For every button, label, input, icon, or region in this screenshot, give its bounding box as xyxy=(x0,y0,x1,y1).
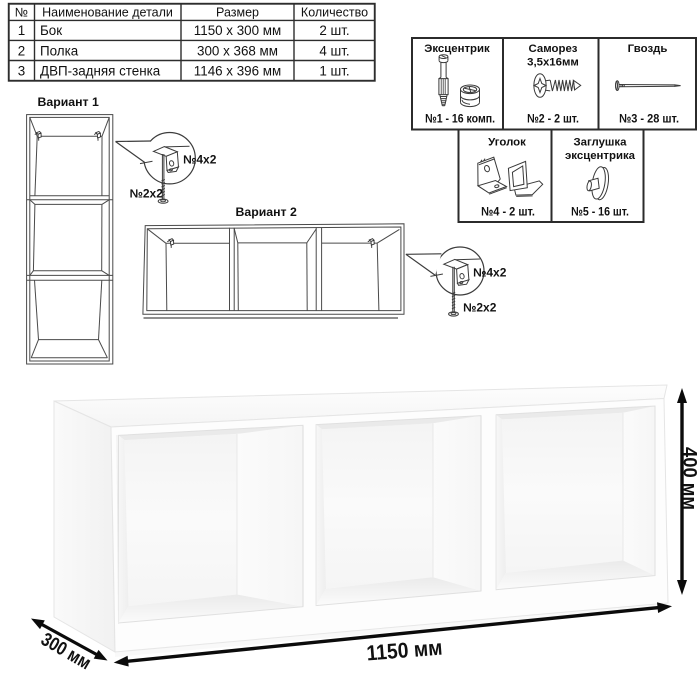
svg-text:3,5х16мм: 3,5х16мм xyxy=(527,57,579,69)
svg-text:Размер: Размер xyxy=(216,5,259,19)
svg-text:2 шт.: 2 шт. xyxy=(319,23,349,38)
svg-text:№4 - 2 шт.: №4 - 2 шт. xyxy=(481,205,535,219)
svg-text:№3 - 28 шт.: №3 - 28 шт. xyxy=(619,111,679,125)
svg-text:№: № xyxy=(15,5,28,19)
svg-text:3: 3 xyxy=(18,64,25,79)
svg-text:Гвоздь: Гвоздь xyxy=(628,43,668,55)
svg-text:№2 - 2 шт.: №2 - 2 шт. xyxy=(527,111,579,125)
svg-text:Уголок: Уголок xyxy=(488,137,526,149)
svg-text:1 шт.: 1 шт. xyxy=(319,64,349,79)
svg-text:Полка: Полка xyxy=(40,43,79,58)
svg-text:Вариант 2: Вариант 2 xyxy=(236,205,297,219)
svg-text:№2х2: №2х2 xyxy=(463,301,497,315)
svg-text:эксцентрика: эксцентрика xyxy=(565,150,636,162)
svg-text:Вариант 1: Вариант 1 xyxy=(38,95,99,109)
svg-text:№4х2: №4х2 xyxy=(183,152,217,166)
svg-text:400 мм: 400 мм xyxy=(679,447,700,510)
svg-text:№5 - 16 шт.: №5 - 16 шт. xyxy=(571,205,629,219)
svg-text:Эксцентрик: Эксцентрик xyxy=(424,43,490,55)
svg-text:№2х2: №2х2 xyxy=(130,187,164,201)
svg-text:Бок: Бок xyxy=(40,23,62,38)
svg-text:300 х 368 мм: 300 х 368 мм xyxy=(197,43,278,58)
svg-text:1150 мм: 1150 мм xyxy=(366,636,444,666)
svg-text:1150 х 300 мм: 1150 х 300 мм xyxy=(194,23,281,38)
svg-text:Наименование детали: Наименование детали xyxy=(42,5,173,19)
svg-text:ДВП-задняя стенка: ДВП-задняя стенка xyxy=(40,64,161,79)
svg-text:№1 - 16 комп.: №1 - 16 комп. xyxy=(425,111,495,125)
svg-text:№4х2: №4х2 xyxy=(473,266,507,280)
svg-text:1146 х 396 мм: 1146 х 396 мм xyxy=(194,64,281,79)
svg-text:2: 2 xyxy=(18,43,25,58)
svg-text:4 шт.: 4 шт. xyxy=(319,43,349,58)
svg-text:Саморез: Саморез xyxy=(529,43,578,55)
svg-text:Количество: Количество xyxy=(301,5,368,19)
svg-text:1: 1 xyxy=(18,23,25,38)
svg-text:Заглушка: Заглушка xyxy=(574,137,628,149)
